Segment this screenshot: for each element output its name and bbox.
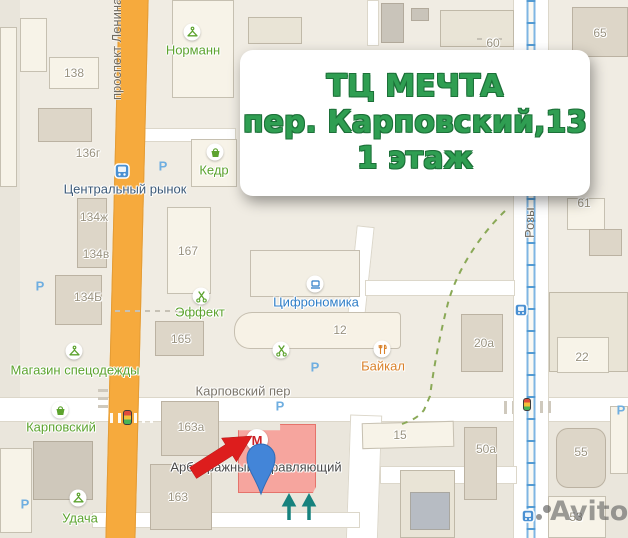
scissors-icon[interactable] <box>273 342 290 359</box>
building-label: 50а <box>476 442 496 456</box>
place-label: Кедр <box>199 163 228 178</box>
address-callout: ТЦ МЕЧТА пер. Карповский,13 1 этаж <box>240 50 590 196</box>
place-label: Эффект <box>175 305 225 320</box>
callout-line-2: пер. Карповский,13 <box>243 105 587 141</box>
basket-icon[interactable] <box>207 144 224 161</box>
crosswalk <box>110 413 155 423</box>
building-label: 61 <box>577 196 590 210</box>
building <box>440 10 514 47</box>
place-label: Магазин спецодежды <box>10 363 139 378</box>
hanger-icon[interactable] <box>70 490 87 507</box>
place-label: Байкал <box>361 359 405 374</box>
building-label: 20а <box>474 336 494 350</box>
traffic-light-icon <box>123 410 132 425</box>
building <box>381 3 404 43</box>
callout-line-1: ТЦ МЕЧТА <box>326 69 503 105</box>
basket-icon[interactable] <box>52 402 69 419</box>
mechta-logo-icon[interactable]: М <box>246 429 268 451</box>
avito-watermark-text: Avito <box>550 496 628 527</box>
hanger-icon[interactable] <box>66 343 83 360</box>
building <box>410 492 450 530</box>
parking-icon: P <box>21 497 30 512</box>
building-label: 165 <box>171 332 191 346</box>
building-label: 22 <box>575 350 588 364</box>
street-label-prospekt-lenina: проспект Ленина <box>109 0 125 100</box>
scissors-icon[interactable] <box>193 288 210 305</box>
parking-icon: P <box>617 403 626 418</box>
transit-stop-icon[interactable] <box>514 303 528 322</box>
building-label: 12 <box>333 323 346 337</box>
crosswalk <box>504 401 513 414</box>
building-label: 15 <box>393 428 406 442</box>
map-canvas[interactable]: М Центральный рынок проспект Ленина Розы… <box>0 0 628 538</box>
transit-stop-icon[interactable] <box>521 509 535 528</box>
building <box>362 421 455 449</box>
place-label: Удача <box>62 511 98 526</box>
building-label: 65 <box>593 26 606 40</box>
building <box>250 250 360 297</box>
street-label-karpovsky: Карповский пер <box>196 384 291 399</box>
hanger-icon[interactable] <box>184 24 201 41</box>
place-label: Цифрономика <box>273 295 359 310</box>
building-label: 134Б <box>74 290 102 304</box>
building-label: 163 <box>168 490 188 504</box>
callout-line-3: 1 этаж <box>357 141 474 177</box>
building-label: 167 <box>178 244 198 258</box>
building <box>0 448 32 533</box>
parking-icon: P <box>311 360 320 375</box>
building <box>0 27 17 187</box>
building <box>20 18 47 72</box>
building <box>248 17 302 44</box>
place-label: Арбитражный управляющий <box>170 460 341 475</box>
restaurant-icon[interactable] <box>374 341 391 358</box>
building-label: 163а <box>178 420 205 434</box>
building <box>411 8 429 21</box>
parking-icon: P <box>159 159 168 174</box>
building-label: 55 <box>574 445 587 459</box>
avito-logo-dots <box>534 499 550 525</box>
traffic-light-icon <box>523 398 531 411</box>
building <box>464 427 497 500</box>
place-label: Карповский <box>26 420 96 435</box>
road-driveway <box>365 280 515 296</box>
avito-watermark: Avito <box>534 496 628 527</box>
place-label: Норманн <box>166 43 220 58</box>
station-label: Центральный рынок <box>64 182 187 197</box>
parking-icon: P <box>276 399 285 414</box>
crosswalk <box>98 388 108 408</box>
mechta-logo-letter: М <box>252 433 263 448</box>
laptop-icon[interactable] <box>307 276 324 293</box>
street-label-rozy: Розы <box>522 196 538 238</box>
building <box>589 229 622 256</box>
building-label: 134ж <box>80 210 108 224</box>
building <box>38 108 92 142</box>
road-path <box>367 0 379 46</box>
building-label: 60 <box>486 36 499 50</box>
building-label: 138 <box>64 66 84 80</box>
building-label: 136г <box>76 146 100 160</box>
parking-icon: P <box>36 279 45 294</box>
building-label: 134в <box>83 247 109 261</box>
crosswalk <box>540 401 551 413</box>
